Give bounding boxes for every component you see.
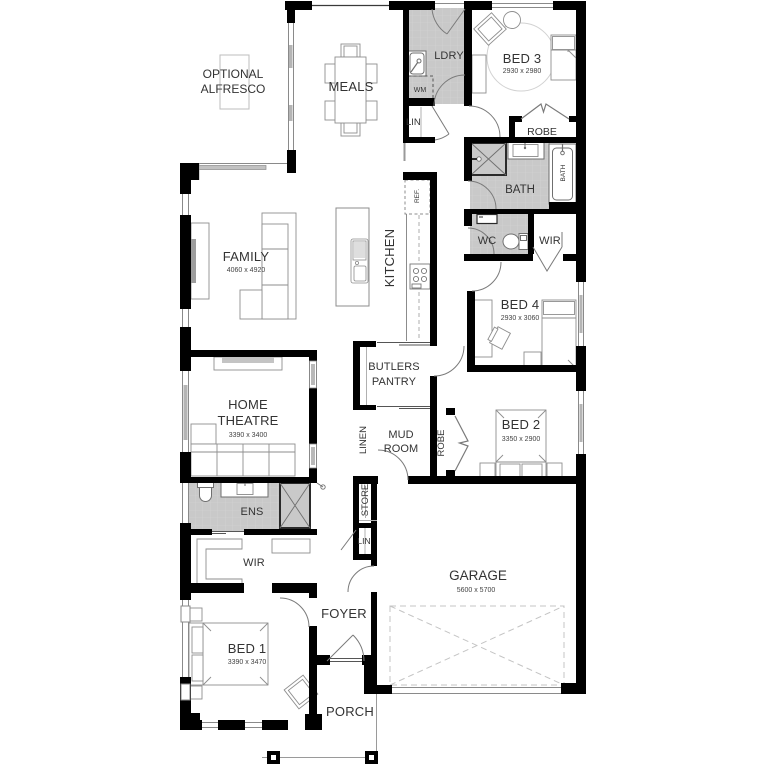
svg-text:PORCH: PORCH — [326, 704, 374, 719]
svg-text:2930 x 3060: 2930 x 3060 — [501, 315, 540, 322]
svg-text:BED 1: BED 1 — [228, 641, 267, 656]
svg-text:5600 x 5700: 5600 x 5700 — [457, 587, 496, 594]
svg-text:BATH: BATH — [560, 164, 567, 181]
svg-text:KITCHEN: KITCHEN — [382, 229, 397, 287]
svg-text:LINEN: LINEN — [358, 426, 369, 454]
svg-text:GARAGE: GARAGE — [449, 568, 507, 583]
svg-text:WM: WM — [414, 87, 427, 94]
svg-text:THEATRE: THEATRE — [217, 413, 278, 428]
svg-text:WC: WC — [478, 235, 497, 247]
svg-text:BED 4: BED 4 — [501, 297, 540, 312]
svg-text:LIN: LIN — [406, 117, 421, 128]
svg-text:ROBE: ROBE — [436, 430, 447, 457]
svg-text:MUD: MUD — [388, 429, 413, 441]
svg-text:OPTIONAL: OPTIONAL — [203, 67, 264, 81]
svg-text:REF.: REF. — [414, 189, 421, 203]
svg-text:WIR: WIR — [243, 557, 265, 569]
svg-text:BATH: BATH — [505, 184, 535, 196]
svg-text:3390 x 3470: 3390 x 3470 — [228, 659, 267, 666]
svg-text:HOME: HOME — [228, 397, 268, 412]
svg-text:ROOM: ROOM — [384, 443, 419, 455]
svg-text:LDRY: LDRY — [434, 50, 464, 62]
svg-text:PANTRY: PANTRY — [372, 376, 417, 388]
svg-text:STORE: STORE — [360, 484, 371, 517]
svg-text:ENS: ENS — [241, 506, 264, 518]
svg-text:3350 x 2900: 3350 x 2900 — [502, 436, 541, 443]
svg-text:FAMILY: FAMILY — [223, 249, 270, 264]
svg-text:3390 x 3400: 3390 x 3400 — [229, 432, 268, 439]
svg-text:BED 2: BED 2 — [502, 417, 541, 432]
svg-text:BED 3: BED 3 — [503, 51, 542, 66]
svg-text:MEALS: MEALS — [328, 79, 373, 94]
svg-text:LIN: LIN — [357, 536, 370, 546]
svg-text:FOYER: FOYER — [321, 606, 367, 621]
svg-text:2930 x 2980: 2930 x 2980 — [503, 68, 542, 75]
svg-text:WIR: WIR — [539, 235, 561, 247]
svg-text:ALFRESCO: ALFRESCO — [201, 82, 266, 96]
svg-text:BUTLERS: BUTLERS — [368, 361, 419, 373]
svg-text:4060 x 4920: 4060 x 4920 — [227, 267, 266, 274]
svg-text:ROBE: ROBE — [527, 126, 557, 138]
